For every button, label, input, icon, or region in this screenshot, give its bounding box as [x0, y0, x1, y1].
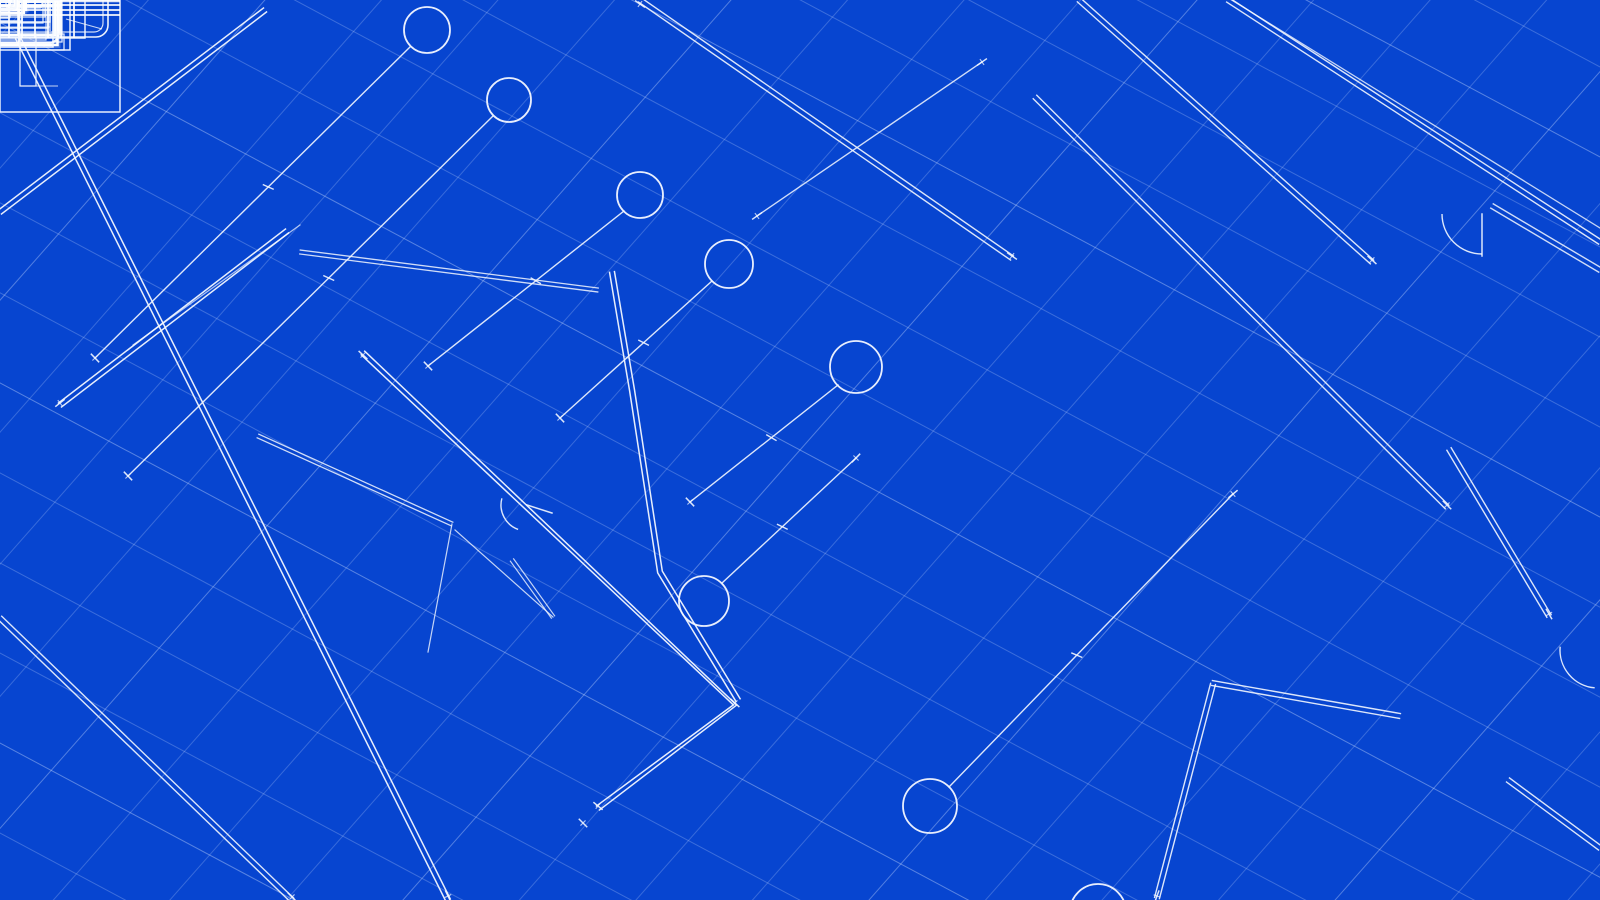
blueprint-wallpaper: [0, 0, 1600, 900]
door-swing-arc: [1442, 214, 1482, 254]
callout-circles: [95, 7, 1233, 900]
door-arcs: [501, 214, 1595, 688]
door-swing-arc: [1560, 647, 1595, 688]
callout-circle: [404, 7, 450, 53]
callout-circle: [679, 576, 729, 626]
door-swing-arc: [501, 498, 518, 529]
blueprint-canvas: [0, 0, 1600, 900]
callout-circle: [1070, 884, 1126, 900]
end-ticks: [55, 1, 1552, 900]
perspective-grid: [0, 0, 1600, 900]
callout-circle: [487, 78, 531, 122]
